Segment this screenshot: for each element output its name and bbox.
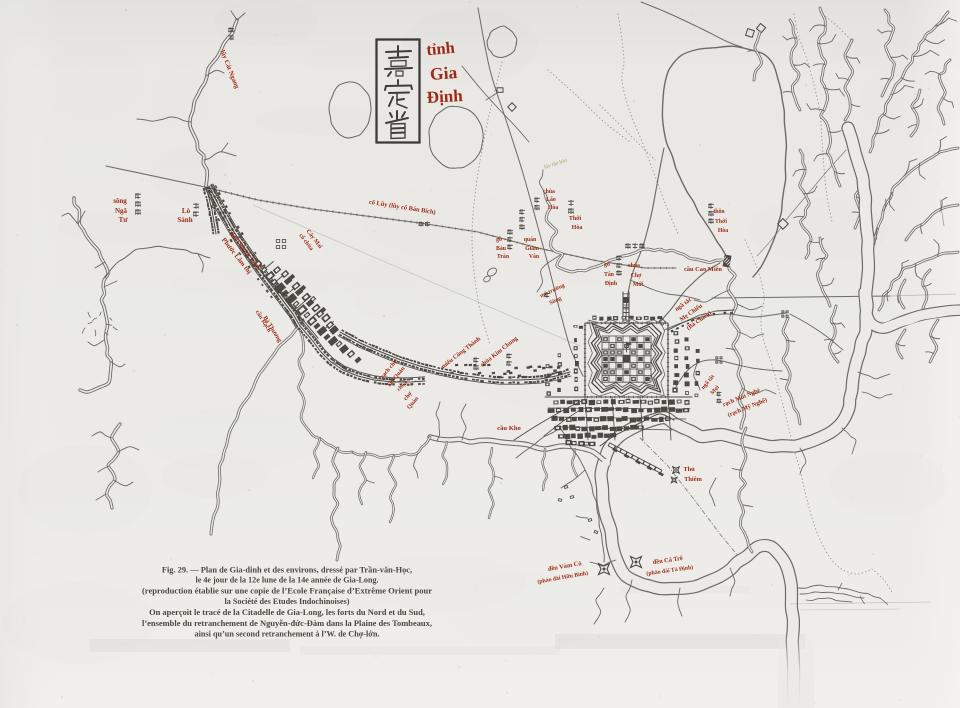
svg-text:Hòa: Hòa (718, 228, 728, 234)
svg-text:Mới: Mới (633, 282, 644, 288)
svg-text:Sành: Sành (177, 216, 192, 224)
svg-text:Định: Định (605, 281, 618, 287)
svg-text:Fig. 29. — Plan de Gia-dinh et: Fig. 29. — Plan de Gia-dinh et des envir… (162, 566, 412, 575)
svg-text:chùa: chùa (628, 263, 640, 269)
svg-text:sông: sông (113, 197, 127, 205)
svg-text:Vân: Vân (529, 254, 540, 260)
svg-text:Tân: Tân (604, 272, 615, 278)
svg-text:gò: gò (496, 237, 502, 243)
svg-text:Ngã: Ngã (115, 207, 128, 215)
svg-text:On aperçoit le tracé de la Cit: On aperçoit le tracé de la Citadelle de … (149, 607, 425, 617)
svg-text:Gia: Gia (429, 62, 458, 84)
svg-text:chùa: chùa (543, 189, 555, 195)
svg-text:(reproduction établie sur une: (reproduction établie sur une copie de l… (142, 586, 432, 596)
svg-text:Lão: Lão (546, 197, 556, 203)
svg-text:gò: gò (604, 262, 610, 268)
svg-text:Giám: Giám (525, 246, 539, 252)
svg-text:Hòa: Hòa (572, 225, 583, 231)
svg-text:cầu Kho: cầu Kho (497, 425, 521, 432)
svg-text:le 4e jour de la 12e lune de l: le 4e jour de la 12e lune de la 14e anné… (195, 576, 378, 585)
svg-text:Bàu: Bàu (496, 246, 507, 252)
svg-text:Tư: Tư (119, 216, 129, 224)
svg-text:Thiêm: Thiêm (684, 476, 702, 483)
svg-text:la Société des Etudes Indochin: la Société des Etudes Indochinoises) (224, 597, 349, 606)
svg-text:l’ensemble du retranchement de: l’ensemble du retranchement de Nguyễn-đứ… (142, 618, 432, 628)
svg-text:ainsi qu’un second retranchem: ainsi qu’un second retranchement à l’W. … (195, 630, 380, 639)
svg-text:Thới: Thới (715, 219, 727, 225)
svg-text:Tràn: Tràn (497, 254, 510, 260)
svg-text:tỉnh: tỉnh (426, 38, 456, 59)
svg-text:quán: quán (524, 237, 537, 243)
svg-text:Hòa: Hòa (548, 205, 558, 211)
svg-text:Thủ: Thủ (683, 466, 695, 473)
svg-text:Thới: Thới (569, 216, 582, 222)
svg-text:Định: Định (426, 86, 463, 107)
svg-text:Lò: Lò (182, 207, 191, 215)
svg-text:thôn: thôn (713, 209, 725, 215)
svg-text:Chợ: Chợ (631, 273, 642, 279)
svg-text:cầu Cao Miên: cầu Cao Miên (684, 266, 722, 273)
